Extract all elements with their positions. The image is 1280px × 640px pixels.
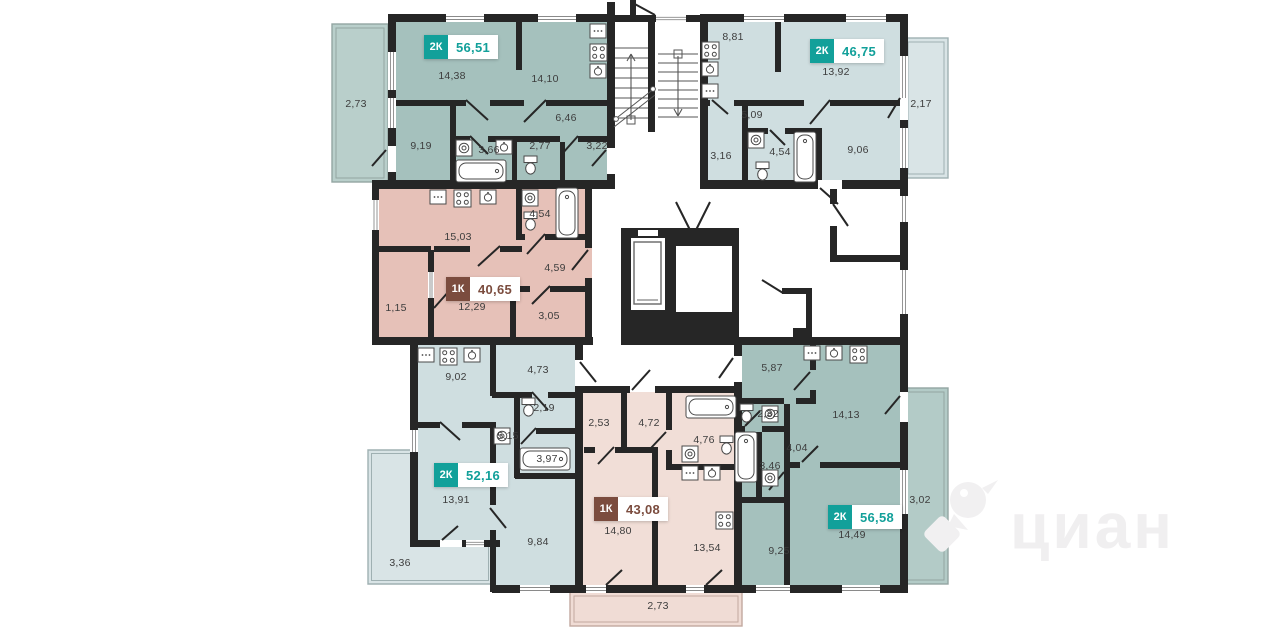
apartment-type-badge: 1К [594,497,618,521]
room-area-label: 4,59 [544,262,565,274]
apartment-area-value: 46,75 [834,39,884,63]
room-area-label: 5,87 [761,362,782,374]
apartment-badge: 2К 56,51 [424,35,498,59]
apartment-type-badge: 2К [828,505,852,529]
room-area-label: 4,04 [786,442,807,454]
room-area-label: 13,91 [442,494,469,506]
room-area-label: 13,92 [822,66,849,78]
apartment-badge: 2К 46,75 [810,39,884,63]
apartment-badge: 1К 40,65 [446,277,520,301]
apartment-badge: 2К 52,16 [434,463,508,487]
room-area-label: 14,49 [838,529,865,541]
room-area-label: 3,46 [759,460,780,472]
apartment-area-value: 56,58 [852,505,902,529]
room-area-label: 3,05 [538,310,559,322]
room-area-label: 3,36 [389,557,410,569]
cian-bird-logo [924,462,1010,562]
apartment-type-badge: 1К [446,277,470,301]
room-area-label: 2,73 [345,98,366,110]
room-area-label: 5,15 [497,430,518,442]
room-area-label: 4,73 [527,364,548,376]
room-area-label: 2,53 [588,417,609,429]
room-area-label: 4,76 [693,434,714,446]
watermark-text: циан [1010,494,1175,562]
room-area-label: 2,73 [647,600,668,612]
room-area-label: 6,46 [555,112,576,124]
room-area-label: 3,97 [536,453,557,465]
room-area-label: 3,66 [478,144,499,156]
apartment-type-badge: 2К [810,39,834,63]
apartment-area-value: 56,51 [448,35,498,59]
apartment-badge: 1К 43,08 [594,497,668,521]
room-area-label: 9,19 [410,140,431,152]
room-area-label: 14,38 [438,70,465,82]
room-area-label: 15,03 [444,231,471,243]
room-area-label: 4,54 [529,208,550,220]
apartment-area-value: 43,08 [618,497,668,521]
apartment-area-value: 40,65 [470,277,520,301]
room-area-label: 2,17 [910,98,931,110]
room-area-label: 2,32 [757,408,778,420]
room-area-label: 3,22 [586,140,607,152]
room-area-label: 12,29 [458,301,485,313]
room-area-label: 8,81 [722,31,743,43]
room-area-label: 14,80 [604,525,631,537]
apartment-area-value: 52,16 [458,463,508,487]
cian-watermark: циан [924,462,1175,562]
elevator-shaft [621,228,739,345]
room-area-label: 1,15 [385,302,406,314]
room-area-label: 9,84 [527,536,548,548]
room-area-label: 14,10 [531,73,558,85]
floorplan-canvas: циан 2К 56,51 2К 46,75 1К 40,65 2К 52,16… [0,0,1280,640]
apartment-type-badge: 2К [424,35,448,59]
room-area-label: 9,25 [768,545,789,557]
room-area-label: 3,16 [710,150,731,162]
room-area-label: 5,09 [741,109,762,121]
room-area-label: 4,72 [638,417,659,429]
room-area-label: 4,54 [769,146,790,158]
room-area-label: 14,13 [832,409,859,421]
room-area-label: 2,77 [529,140,550,152]
apartment-badge: 2К 56,58 [828,505,902,529]
room-area-label: 3,02 [909,494,930,506]
room-area-label: 9,06 [847,144,868,156]
apartment-type-badge: 2К [434,463,458,487]
staircase [614,22,698,132]
room-area-label: 13,54 [693,542,720,554]
room-area-label: 2,19 [533,402,554,414]
room-area-label: 9,02 [445,371,466,383]
